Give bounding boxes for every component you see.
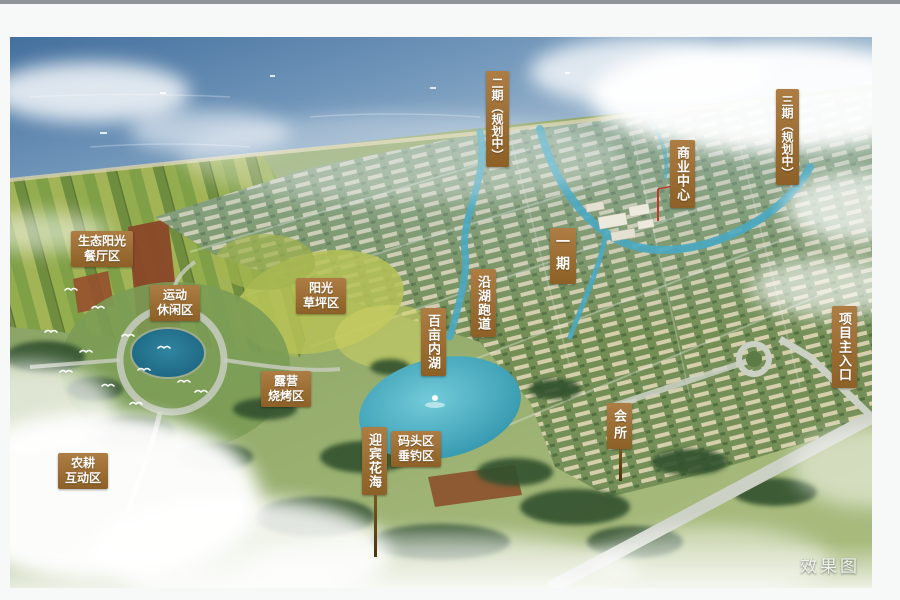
zone-label-text: 运动 <box>157 288 193 303</box>
zone-label-text: 农耕 <box>65 456 101 471</box>
zone-label-dock-fishing-zone: 码头区垂钓区 <box>391 431 441 467</box>
zone-label-sunshine-lawn-zone: 阳光草坪区 <box>296 278 346 314</box>
zone-label-commercial-center: 商业中心 <box>670 140 695 208</box>
zone-label-text: 迎宾花海 <box>365 433 384 489</box>
zone-label-text: 餐厅区 <box>78 249 126 264</box>
zone-label-text: 生态阳光 <box>78 234 126 249</box>
zone-label-text: 烧烤区 <box>268 389 304 404</box>
zone-label-main-entrance: 项目主入口 <box>832 306 857 388</box>
zone-label-text: 三期（规划中） <box>779 95 796 179</box>
label-pole <box>619 449 622 481</box>
zone-label-hundred-acre-inner-lake: 百亩内湖 <box>421 308 446 376</box>
label-pole <box>374 495 377 557</box>
zone-label-sports-leisure-zone: 运动休闲区 <box>150 285 200 321</box>
zone-labels-layer: 生态阳光餐厅区运动休闲区阳光草坪区露营烧烤区农耕互动区码头区垂钓区迎宾花海百亩内… <box>0 0 900 600</box>
zone-label-phase-2-planning: 二期（规划中） <box>486 71 509 167</box>
zone-label-text: 休闲区 <box>157 303 193 318</box>
zone-label-text: 二期（规划中） <box>489 77 506 161</box>
zone-label-text: 码头区 <box>398 434 434 449</box>
zone-label-welcome-flower-sea: 迎宾花海 <box>362 427 387 495</box>
zone-label-text: 垂钓区 <box>398 449 434 464</box>
zone-label-phase-1: 一期 <box>550 228 576 284</box>
zone-label-phase-3-planning: 三期（规划中） <box>776 89 799 185</box>
zone-label-lakeside-running-track: 沿湖跑道 <box>471 269 496 337</box>
rendering-watermark: 效果图 <box>800 552 860 577</box>
zone-label-text: 沿湖跑道 <box>474 275 493 331</box>
zone-label-eco-sunshine-restaurant-zone: 生态阳光餐厅区 <box>71 231 133 267</box>
zone-label-text: 露营 <box>268 374 304 389</box>
zone-label-camping-bbq-zone: 露营烧烤区 <box>261 371 311 407</box>
zone-label-text: 互动区 <box>65 471 101 486</box>
zone-label-text: 会所 <box>610 409 629 443</box>
screenshot-canvas: 生态阳光餐厅区运动休闲区阳光草坪区露营烧烤区农耕互动区码头区垂钓区迎宾花海百亩内… <box>0 0 900 600</box>
zone-label-text: 项目主入口 <box>835 312 854 382</box>
zone-label-text: 阳光 <box>303 281 339 296</box>
zone-label-text: 一期 <box>553 234 573 278</box>
zone-label-text: 百亩内湖 <box>424 314 443 370</box>
zone-label-text: 商业中心 <box>673 146 692 202</box>
zone-label-text: 草坪区 <box>303 296 339 311</box>
zone-label-farming-interactive-zone: 农耕互动区 <box>58 453 108 489</box>
zone-label-clubhouse: 会所 <box>607 403 632 449</box>
